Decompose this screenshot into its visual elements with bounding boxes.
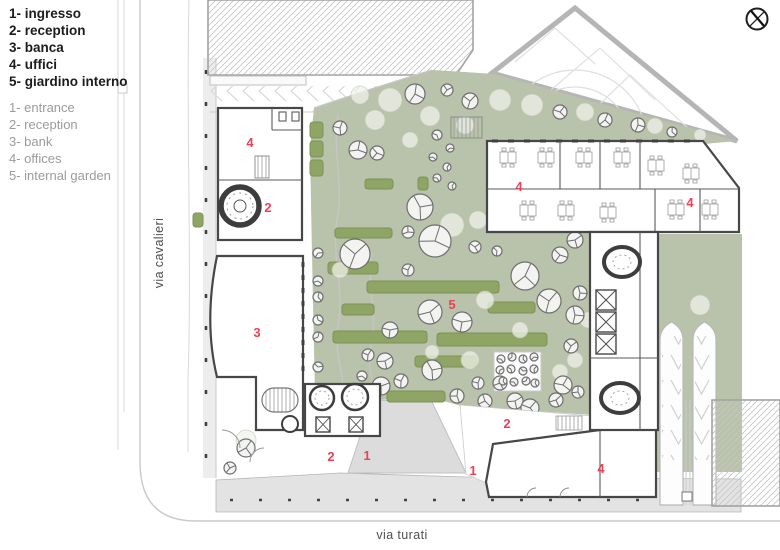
area-number-4: 4: [597, 461, 605, 476]
stair: [556, 416, 582, 430]
tree: [313, 292, 323, 302]
floor-plan-page: 1- ingresso2- reception3- banca4- uffici…: [0, 0, 780, 550]
compass-icon: [747, 9, 768, 30]
tree: [497, 355, 505, 363]
tree: [598, 113, 612, 127]
tree-canopy: [461, 351, 479, 369]
tree: [450, 389, 464, 403]
legend-item: 1- ingresso: [9, 5, 128, 22]
hedge-row: [418, 177, 428, 190]
building-offices-nw: [218, 108, 302, 240]
hedge-row: [310, 160, 323, 176]
stair: [262, 388, 298, 412]
elevator: [596, 290, 616, 310]
tree-canopy: [567, 352, 583, 368]
tree-canopy: [489, 89, 511, 111]
tree: [496, 366, 504, 374]
tree: [407, 194, 433, 220]
elevator: [316, 417, 330, 432]
tree: [224, 462, 236, 474]
elevator: [596, 334, 616, 354]
neighbor-block-nw: [208, 0, 473, 75]
tree-canopy: [690, 295, 710, 315]
tree: [370, 146, 384, 160]
tree: [432, 130, 442, 140]
area-number-4: 4: [246, 135, 254, 150]
tree: [313, 362, 323, 372]
tree: [349, 141, 367, 159]
hedge-row: [310, 141, 323, 157]
tree: [313, 276, 323, 286]
tree: [469, 241, 481, 253]
tree-canopy: [512, 322, 528, 338]
tree: [508, 353, 516, 361]
hedge-row: [342, 304, 374, 315]
neighbor-block-se: [712, 400, 780, 506]
area-number-5: 5: [448, 297, 455, 312]
tree: [522, 377, 530, 385]
legend-item: 4- offices: [9, 150, 128, 167]
tree: [357, 371, 367, 381]
hedge-row: [193, 213, 203, 227]
tree: [443, 163, 451, 171]
area-number-4: 4: [686, 195, 694, 210]
tree: [441, 84, 453, 96]
tree: [419, 225, 451, 257]
hedge-row: [437, 333, 547, 346]
service-core-east: [590, 232, 658, 430]
tree: [530, 365, 538, 373]
tree-canopy: [402, 132, 418, 148]
tree-canopy: [521, 94, 543, 116]
tree: [402, 226, 414, 238]
area-number-1: 1: [469, 463, 476, 478]
tree: [631, 118, 645, 132]
tree-canopy: [476, 291, 494, 309]
tree-canopy: [425, 345, 439, 359]
legend-item: 2- reception: [9, 116, 128, 133]
tree: [422, 360, 442, 380]
spiral-stair: [282, 416, 298, 432]
oval-stair: [604, 247, 640, 277]
tree: [362, 349, 374, 361]
area-number-2: 2: [264, 200, 271, 215]
tree: [554, 376, 572, 394]
area-number-2: 2: [327, 449, 334, 464]
tree: [446, 144, 454, 152]
tree-canopy: [694, 129, 706, 141]
garden-stair: [451, 117, 482, 138]
tree-canopy: [576, 103, 594, 121]
legend-item: 4- uffici: [9, 56, 128, 73]
ramp-chevrons: [695, 336, 714, 460]
hedge-row: [488, 302, 535, 313]
tree-canopy: [351, 86, 369, 104]
tree: [448, 182, 456, 190]
tree: [478, 394, 492, 408]
legend-italian: 1- ingresso2- reception3- banca4- uffici…: [9, 5, 128, 90]
tree: [567, 232, 583, 248]
tree: [564, 339, 578, 353]
tree-canopy: [469, 211, 487, 229]
area-number-4: 4: [515, 179, 523, 194]
area-number-3: 3: [253, 325, 260, 340]
tree-canopy: [365, 110, 385, 130]
tree: [573, 286, 587, 300]
elevator: [349, 417, 363, 432]
legend-item: 5- internal garden: [9, 167, 128, 184]
tree-canopy: [420, 106, 440, 126]
tree: [452, 312, 472, 332]
tree: [492, 246, 502, 256]
legend-item: 5- giardino interno: [9, 73, 128, 90]
stair: [255, 156, 269, 178]
tree: [313, 248, 323, 258]
legend-english: 1- entrance2- reception3- bank4- offices…: [9, 99, 128, 184]
spiral-stair: [342, 384, 368, 410]
tree: [553, 105, 567, 119]
tree: [499, 377, 507, 385]
tree: [566, 306, 584, 324]
tree: [340, 239, 370, 269]
ramp-chevrons: [662, 336, 681, 460]
hedge-row: [367, 281, 499, 293]
canopy-band: [210, 76, 306, 85]
elevator: [596, 312, 616, 332]
tree: [519, 367, 527, 375]
tree: [510, 378, 518, 386]
tree: [531, 379, 539, 387]
tree: [405, 84, 425, 104]
tree: [549, 393, 563, 407]
tree: [667, 127, 677, 137]
tree: [572, 386, 584, 398]
tree: [394, 374, 408, 388]
area-number-1: 1: [363, 448, 370, 463]
tree: [333, 121, 347, 135]
tree: [313, 332, 323, 342]
legend-item: 2- reception: [9, 22, 128, 39]
hedge-row: [310, 122, 323, 138]
hedge-row: [333, 331, 427, 343]
tree: [313, 315, 323, 325]
spiral-stair: [310, 386, 334, 410]
hedge-row: [387, 391, 445, 402]
tree: [552, 247, 568, 263]
tree: [519, 355, 527, 363]
tree: [418, 300, 442, 324]
tree: [377, 353, 393, 369]
tree: [507, 365, 515, 373]
legend-item: 3- bank: [9, 133, 128, 150]
legend-item: 3- banca: [9, 39, 128, 56]
tree: [402, 264, 414, 276]
ramp-marker: [682, 492, 692, 501]
area-number-2: 2: [503, 416, 510, 431]
legend-item: 1- entrance: [9, 99, 128, 116]
street-name-left: via cavalieri: [152, 218, 166, 289]
tree: [429, 153, 437, 161]
oval-stair: [601, 383, 639, 413]
hedge-row: [365, 179, 393, 189]
tree: [433, 174, 441, 182]
road-line: [188, 0, 189, 452]
tree: [472, 377, 484, 389]
tree: [511, 262, 539, 290]
tree: [462, 93, 478, 109]
hedge-row: [335, 228, 392, 238]
tree: [382, 322, 398, 338]
tree-canopy: [378, 88, 402, 112]
tree: [530, 353, 538, 361]
legend: 1- ingresso2- reception3- banca4- uffici…: [9, 5, 128, 184]
tree: [537, 289, 561, 313]
street-name-bottom: via turati: [376, 528, 427, 542]
tree-canopy: [647, 118, 663, 134]
